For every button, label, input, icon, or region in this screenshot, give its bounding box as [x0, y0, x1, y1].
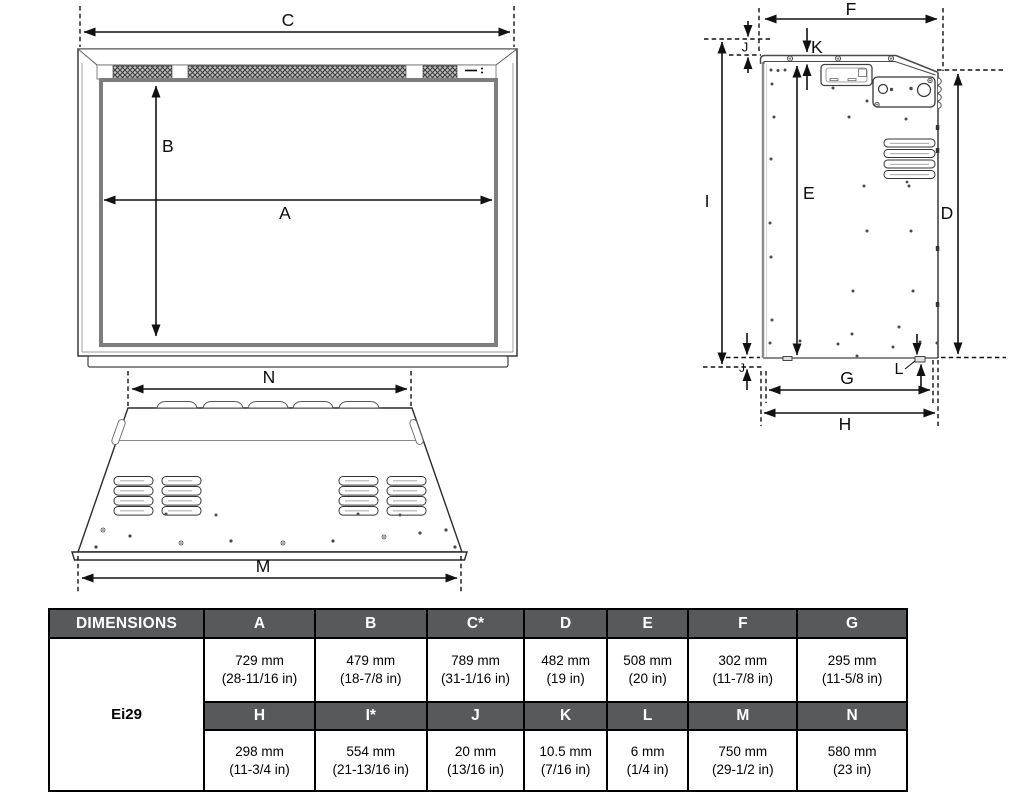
- side-screw-dots: [769, 69, 939, 358]
- col-header-F: F: [688, 609, 797, 638]
- value-M: 750 mm(29-1/2 in): [688, 730, 797, 791]
- col-header-N: N: [797, 702, 907, 730]
- dim-label-c: C: [282, 10, 295, 30]
- dim-label-d: D: [941, 203, 954, 223]
- col-header-D: D: [524, 609, 607, 638]
- dimension-J-top: J: [704, 21, 770, 73]
- dimension-N: N: [128, 367, 411, 406]
- col-header-I: I*: [315, 702, 427, 730]
- col-header-L: L: [607, 702, 689, 730]
- side-junction-plate: [873, 77, 935, 107]
- dim-label-m: M: [256, 556, 271, 576]
- dim-label-a: A: [279, 203, 291, 223]
- side-foot: [915, 357, 925, 363]
- dim-label-e: E: [803, 183, 815, 203]
- side-handle-recess: [821, 65, 872, 86]
- dimension-drawing: C B A: [0, 0, 1035, 600]
- value-D: 482 mm(19 in): [524, 638, 607, 702]
- dimensions-table: DIMENSIONS A B C* D E F G Ei29 729 mm(28…: [48, 608, 908, 792]
- dimension-J-bottom: J: [739, 333, 747, 390]
- rear-body: [72, 402, 467, 561]
- col-header-K: K: [524, 702, 607, 730]
- value-I: 554 mm(21-13/16 in): [315, 730, 427, 791]
- grille-mesh-segment: [113, 66, 172, 78]
- dim-label-j-top: J: [742, 40, 749, 55]
- col-header-E: E: [607, 609, 689, 638]
- dimension-D: D: [937, 70, 1006, 358]
- value-L: 6 mm(1/4 in): [607, 730, 689, 791]
- value-A: 729 mm(28-11/16 in): [204, 638, 315, 702]
- col-header-C: C*: [427, 609, 525, 638]
- dim-label-j-bottom: J: [739, 361, 745, 375]
- dimension-C: C: [80, 6, 514, 47]
- dim-label-n: N: [263, 367, 276, 387]
- rear-view: N M: [72, 367, 467, 594]
- dimension-M: M: [78, 556, 461, 594]
- value-J: 20 mm(13/16 in): [427, 730, 525, 791]
- dimension-I: I: [703, 42, 762, 367]
- flange-screws: [787, 56, 893, 61]
- value-C: 789 mm(31-1/16 in): [427, 638, 525, 702]
- side-foot: [783, 357, 792, 361]
- dim-label-f: F: [846, 0, 857, 19]
- grille-mesh-segment: [423, 66, 457, 78]
- dimension-F: F: [759, 0, 943, 71]
- model-name: Ei29: [49, 638, 204, 791]
- dim-label-b: B: [162, 136, 174, 156]
- dim-label-g: G: [840, 368, 854, 388]
- value-F: 302 mm(11-7/8 in): [688, 638, 797, 702]
- dimension-E: E: [797, 66, 815, 355]
- dim-label-h: H: [839, 414, 852, 434]
- front-glass-opening: [101, 80, 496, 345]
- col-header-A: A: [204, 609, 315, 638]
- value-G: 295 mm(11-5/8 in): [797, 638, 907, 702]
- table-corner-header: DIMENSIONS: [49, 609, 204, 638]
- side-louver-vents: [884, 139, 935, 183]
- dimensions-table-section: DIMENSIONS A B C* D E F G Ei29 729 mm(28…: [48, 608, 908, 792]
- value-H: 298 mm(11-3/4 in): [204, 730, 315, 791]
- value-K: 10.5 mm(7/16 in): [524, 730, 607, 791]
- col-header-H: H: [204, 702, 315, 730]
- value-N: 580 mm(23 in): [797, 730, 907, 791]
- col-header-J: J: [427, 702, 525, 730]
- col-header-B: B: [315, 609, 427, 638]
- front-grille: [97, 65, 496, 79]
- value-E: 508 mm(20 in): [607, 638, 689, 702]
- value-B: 479 mm(18-7/8 in): [315, 638, 427, 702]
- dim-label-k: K: [811, 37, 823, 57]
- front-bottom-lip: [88, 356, 508, 367]
- dim-label-l: L: [895, 361, 904, 378]
- dim-label-i: I: [705, 191, 710, 211]
- side-view: F K J I E D: [703, 0, 1006, 434]
- rear-top-vents: [157, 402, 379, 409]
- front-view: C B A: [78, 6, 517, 367]
- col-header-G: G: [797, 609, 907, 638]
- side-body: [761, 56, 942, 363]
- col-header-M: M: [688, 702, 797, 730]
- grille-mesh-segment: [188, 66, 406, 78]
